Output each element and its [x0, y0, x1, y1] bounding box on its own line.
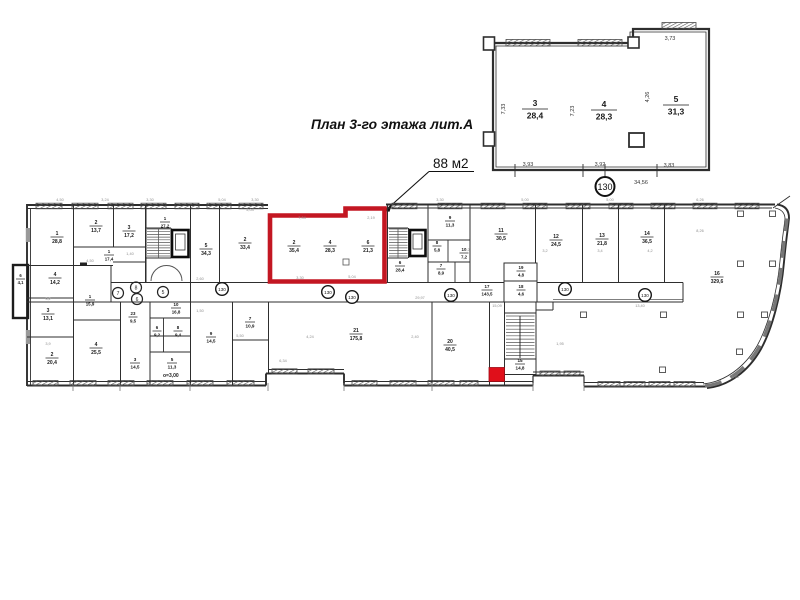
- svg-text:8,9: 8,9: [438, 270, 445, 275]
- svg-text:34,56: 34,56: [634, 180, 648, 186]
- svg-text:9,5: 9,5: [130, 318, 137, 323]
- svg-text:130: 130: [324, 290, 332, 295]
- svg-text:130: 130: [597, 182, 612, 192]
- svg-text:30,5: 30,5: [496, 236, 506, 242]
- svg-text:План 3-го этажа лит.А: План 3-го этажа лит.А: [311, 117, 473, 132]
- svg-text:2: 2: [51, 352, 54, 358]
- svg-text:17,2: 17,2: [124, 233, 134, 239]
- svg-text:14,5: 14,5: [207, 339, 216, 344]
- svg-text:17,4: 17,4: [105, 256, 114, 261]
- svg-text:7,33: 7,33: [501, 104, 507, 115]
- svg-text:130: 130: [641, 293, 649, 298]
- svg-text:6: 6: [367, 240, 370, 246]
- svg-text:28,8: 28,8: [52, 239, 62, 245]
- svg-text:20,4: 20,4: [47, 360, 57, 366]
- svg-text:11: 11: [498, 228, 504, 234]
- svg-text:2,19: 2,19: [367, 216, 374, 220]
- svg-text:5,04: 5,04: [218, 198, 225, 202]
- svg-text:3,9: 3,9: [45, 342, 50, 346]
- svg-text:19: 19: [519, 265, 524, 270]
- svg-text:5: 5: [171, 357, 174, 362]
- svg-text:143,5: 143,5: [482, 291, 494, 296]
- svg-text:7,04: 7,04: [298, 216, 305, 220]
- svg-text:14,8: 14,8: [516, 366, 525, 371]
- svg-text:3: 3: [128, 225, 131, 231]
- svg-text:11,3: 11,3: [446, 223, 455, 228]
- svg-text:3: 3: [47, 308, 50, 314]
- svg-text:11,3: 11,3: [168, 365, 177, 370]
- svg-text:13,1: 13,1: [43, 316, 53, 322]
- svg-text:21,3: 21,3: [363, 248, 373, 254]
- svg-text:8: 8: [135, 286, 138, 292]
- svg-text:9: 9: [210, 331, 213, 336]
- svg-text:21,8: 21,8: [597, 241, 607, 247]
- svg-text:2: 2: [293, 240, 296, 246]
- svg-text:3,93: 3,93: [731, 375, 738, 379]
- svg-text:3,30: 3,30: [251, 198, 258, 202]
- svg-text:33,4: 33,4: [240, 245, 250, 251]
- svg-text:4,8: 4,8: [518, 272, 525, 277]
- svg-text:4,50: 4,50: [56, 198, 63, 202]
- svg-text:13,7: 13,7: [91, 228, 101, 234]
- svg-text:3,92: 3,92: [595, 162, 606, 168]
- svg-text:3: 3: [533, 98, 538, 108]
- svg-text:1,50: 1,50: [196, 309, 203, 313]
- svg-text:175,8: 175,8: [350, 336, 363, 342]
- svg-text:329,6: 329,6: [711, 279, 724, 285]
- svg-text:2,40: 2,40: [411, 335, 418, 339]
- svg-text:6,34: 6,34: [279, 359, 286, 363]
- svg-text:130: 130: [561, 287, 569, 292]
- svg-text:12: 12: [553, 234, 559, 240]
- svg-text:27,2: 27,2: [161, 223, 170, 228]
- svg-text:8,26: 8,26: [696, 229, 703, 233]
- svg-text:4: 4: [329, 240, 332, 246]
- svg-text:4,2: 4,2: [647, 249, 652, 253]
- svg-text:13,40: 13,40: [635, 304, 645, 308]
- svg-text:28,4: 28,4: [527, 111, 544, 121]
- svg-text:35,4: 35,4: [289, 248, 299, 254]
- svg-text:2: 2: [244, 237, 247, 243]
- svg-text:4,1: 4,1: [18, 280, 24, 285]
- svg-text:7,23: 7,23: [570, 106, 576, 117]
- svg-text:3,4: 3,4: [597, 249, 602, 253]
- svg-text:5,00: 5,00: [606, 198, 613, 202]
- svg-text:15,9: 15,9: [86, 301, 95, 306]
- svg-text:1: 1: [56, 231, 59, 237]
- svg-text:40,5: 40,5: [445, 347, 455, 353]
- svg-text:3,30: 3,30: [296, 276, 303, 280]
- svg-text:10,9: 10,9: [246, 324, 255, 329]
- svg-text:25,5: 25,5: [91, 350, 101, 356]
- svg-text:16: 16: [714, 271, 720, 277]
- svg-text:5: 5: [162, 290, 165, 296]
- svg-text:3,30: 3,30: [436, 198, 443, 202]
- svg-text:3: 3: [134, 357, 137, 362]
- svg-text:5: 5: [674, 94, 679, 104]
- svg-text:5: 5: [205, 243, 208, 249]
- svg-text:4,6: 4,6: [518, 291, 525, 296]
- svg-text:5,04: 5,04: [348, 275, 355, 279]
- svg-text:6,26: 6,26: [696, 198, 703, 202]
- svg-text:14: 14: [644, 231, 650, 237]
- svg-text:1,95: 1,95: [556, 342, 563, 346]
- svg-text:1,40: 1,40: [126, 252, 133, 256]
- svg-text:7,2: 7,2: [461, 254, 468, 259]
- svg-text:130: 130: [348, 295, 356, 300]
- svg-text:14,5: 14,5: [131, 365, 140, 370]
- svg-text:6: 6: [136, 297, 139, 303]
- svg-text:9,4: 9,4: [175, 332, 182, 337]
- svg-text:28,3: 28,3: [325, 248, 335, 254]
- svg-text:31,3: 31,3: [668, 107, 685, 117]
- svg-text:3,73: 3,73: [665, 36, 676, 42]
- svg-text:20: 20: [447, 339, 453, 345]
- svg-text:6: 6: [399, 260, 402, 265]
- svg-text:7: 7: [249, 316, 252, 321]
- svg-text:2,60: 2,60: [196, 277, 203, 281]
- svg-text:7: 7: [117, 291, 120, 297]
- svg-text:28,4: 28,4: [396, 268, 405, 273]
- svg-text:14,2: 14,2: [50, 280, 60, 286]
- svg-text:28,3: 28,3: [596, 112, 613, 122]
- svg-text:34,3: 34,3: [201, 251, 211, 257]
- svg-text:23: 23: [131, 311, 136, 316]
- svg-text:3,93: 3,93: [523, 162, 534, 168]
- svg-text:5,00: 5,00: [521, 198, 528, 202]
- svg-text:21: 21: [353, 328, 359, 334]
- svg-text:24,5: 24,5: [551, 242, 561, 248]
- svg-text:4: 4: [54, 272, 57, 278]
- svg-text:4: 4: [95, 342, 98, 348]
- svg-text:16,8: 16,8: [172, 309, 181, 314]
- svg-text:10: 10: [174, 302, 179, 307]
- svg-text:130: 130: [447, 293, 455, 298]
- svg-text:о=3,00: о=3,00: [163, 373, 179, 379]
- svg-text:15,09: 15,09: [492, 304, 502, 308]
- svg-text:5,8: 5,8: [434, 247, 441, 252]
- svg-text:5,50: 5,50: [236, 334, 243, 338]
- svg-text:13: 13: [599, 233, 605, 239]
- svg-text:3,2: 3,2: [542, 249, 547, 253]
- svg-text:18: 18: [519, 284, 524, 289]
- svg-text:9: 9: [449, 215, 452, 220]
- svg-text:4,26: 4,26: [645, 92, 651, 103]
- svg-text:9,2: 9,2: [154, 332, 161, 337]
- svg-text:1,2: 1,2: [464, 248, 469, 252]
- svg-text:3,24: 3,24: [101, 198, 108, 202]
- svg-text:3,30: 3,30: [146, 198, 153, 202]
- svg-text:3,83: 3,83: [664, 163, 675, 169]
- svg-text:4,50: 4,50: [86, 259, 93, 263]
- svg-text:15: 15: [517, 358, 523, 363]
- svg-text:88 м2: 88 м2: [433, 156, 469, 171]
- svg-text:3,2: 3,2: [45, 297, 50, 301]
- svg-text:5,04: 5,04: [246, 208, 253, 212]
- svg-text:130: 130: [218, 287, 226, 292]
- svg-text:36,5: 36,5: [642, 239, 652, 245]
- svg-text:4,24: 4,24: [306, 335, 313, 339]
- svg-text:2: 2: [95, 220, 98, 226]
- svg-text:29,97: 29,97: [415, 296, 425, 300]
- svg-text:4: 4: [602, 99, 607, 109]
- svg-text:17: 17: [485, 284, 490, 289]
